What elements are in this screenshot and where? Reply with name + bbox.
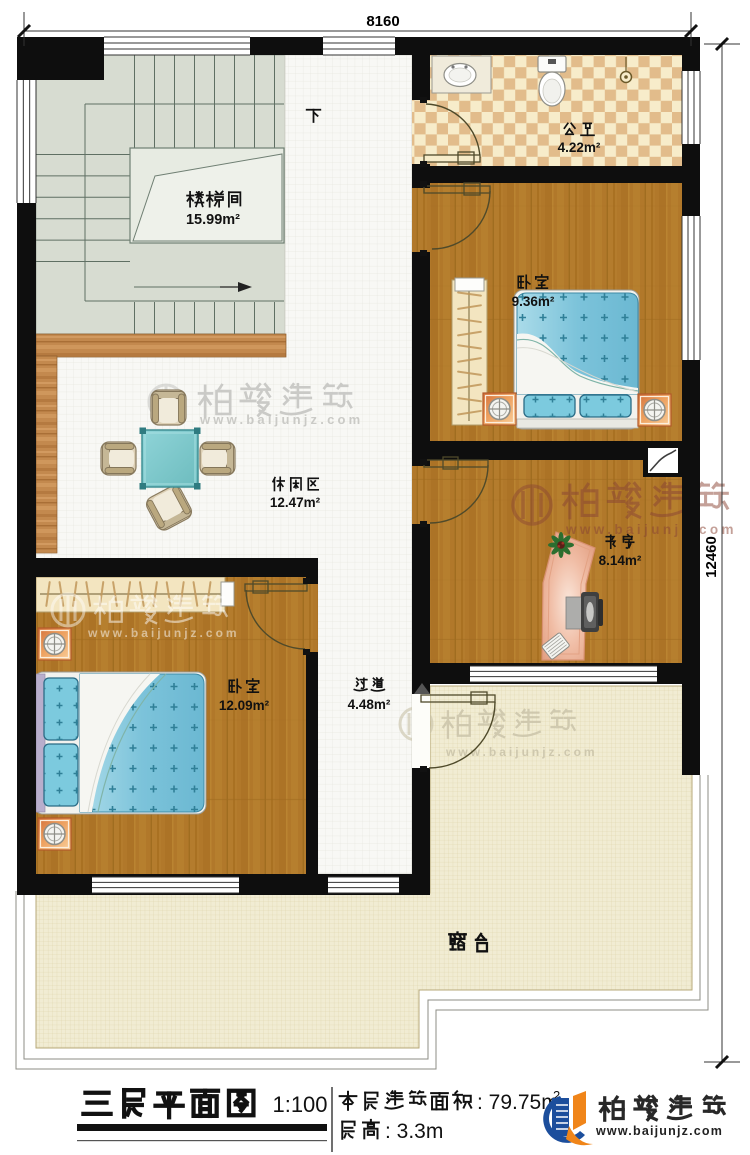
svg-text:4.48m²: 4.48m² — [348, 697, 391, 712]
svg-text:12460: 12460 — [703, 536, 720, 578]
svg-text:8160: 8160 — [366, 13, 399, 30]
svg-text:www.baijunjz.com: www.baijunjz.com — [595, 1124, 723, 1138]
svg-text:4.22m²: 4.22m² — [558, 140, 601, 155]
svg-text:: 3.3m: : 3.3m — [385, 1120, 443, 1143]
svg-text:www.baijunjz.com: www.baijunjz.com — [87, 626, 240, 640]
svg-text:12.09m²: 12.09m² — [219, 698, 270, 713]
svg-text:9.36m²: 9.36m² — [512, 294, 555, 309]
svg-text:1:100: 1:100 — [272, 1092, 327, 1117]
svg-text:www.baijunjz.com: www.baijunjz.com — [445, 745, 598, 759]
svg-text:www.baijunjz.com: www.baijunjz.com — [199, 412, 363, 427]
svg-text:www.baijunjz.com: www.baijunjz.com — [565, 522, 737, 537]
svg-text:8.14m²: 8.14m² — [599, 553, 642, 568]
svg-text:15.99m²: 15.99m² — [186, 212, 240, 228]
svg-text:12.47m²: 12.47m² — [270, 495, 321, 510]
